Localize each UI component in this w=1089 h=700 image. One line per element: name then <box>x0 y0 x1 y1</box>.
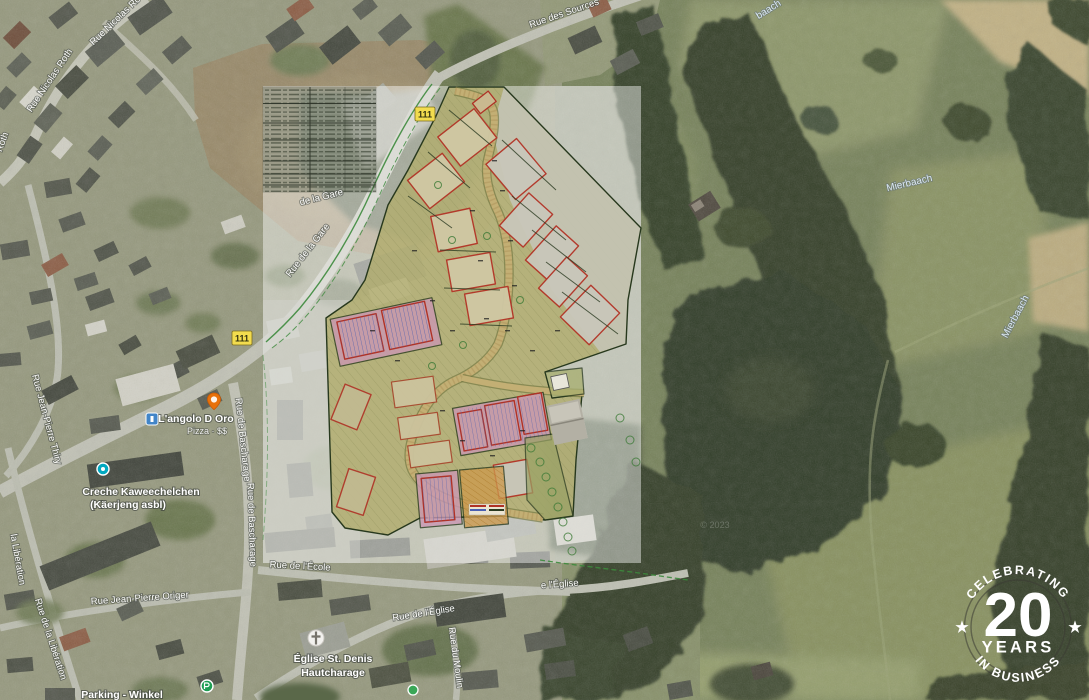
svg-text:(Käerjeng asbl): (Käerjeng asbl) <box>90 499 166 511</box>
svg-text:Pizza · $$: Pizza · $$ <box>187 426 227 436</box>
svg-text:111: 111 <box>418 110 432 120</box>
svg-text:Parking - Winkel: Parking - Winkel <box>81 689 163 700</box>
svg-text:YEARS: YEARS <box>982 639 1055 657</box>
svg-text:Creche Kaweechelchen: Creche Kaweechelchen <box>82 486 199 498</box>
svg-text:Hautcharage: Hautcharage <box>301 667 365 679</box>
svg-text:© 2023: © 2023 <box>700 520 729 530</box>
svg-text:L'angolo D Oro: L'angolo D Oro <box>158 413 233 425</box>
svg-text:Église St. Denis: Église St. Denis <box>294 652 373 665</box>
svg-text:111: 111 <box>235 334 249 344</box>
